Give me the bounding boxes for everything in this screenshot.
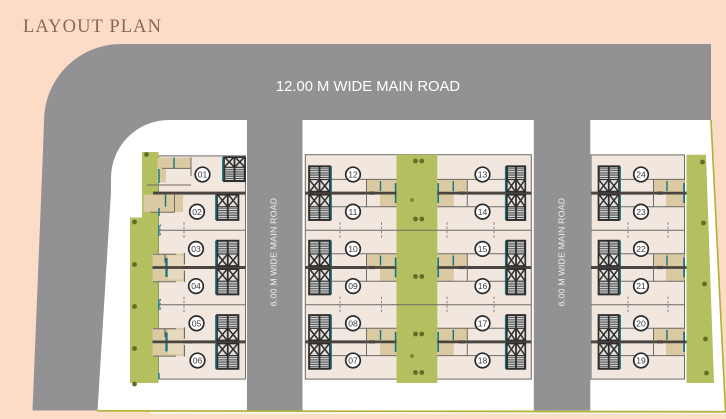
svg-text:12.00 M WIDE MAIN ROAD: 12.00 M WIDE MAIN ROAD	[276, 79, 460, 95]
svg-text:18: 18	[478, 356, 488, 366]
svg-text:09: 09	[348, 281, 358, 291]
svg-text:6.00 M WIDE MAIN ROAD: 6.00 M WIDE MAIN ROAD	[557, 198, 567, 307]
svg-text:23: 23	[636, 207, 646, 217]
svg-text:04: 04	[191, 281, 201, 291]
svg-text:12: 12	[348, 170, 358, 180]
svg-text:14: 14	[478, 207, 488, 217]
svg-text:10: 10	[348, 244, 358, 254]
svg-text:22: 22	[636, 244, 646, 254]
svg-text:01: 01	[198, 170, 208, 180]
svg-text:15: 15	[478, 244, 488, 254]
svg-text:21: 21	[636, 281, 646, 291]
svg-text:17: 17	[478, 318, 488, 328]
svg-text:19: 19	[636, 356, 646, 366]
svg-text:05: 05	[192, 318, 202, 328]
svg-text:20: 20	[636, 318, 646, 328]
svg-text:07: 07	[348, 356, 358, 366]
svg-text:06: 06	[193, 356, 203, 366]
svg-text:6.00 M WIDE MAIN ROAD: 6.00 M WIDE MAIN ROAD	[269, 198, 279, 307]
svg-text:02: 02	[192, 207, 202, 217]
svg-text:13: 13	[478, 170, 488, 180]
svg-text:24: 24	[636, 170, 646, 180]
svg-text:16: 16	[478, 281, 488, 291]
svg-text:11: 11	[349, 207, 358, 217]
svg-text:08: 08	[348, 318, 358, 328]
svg-text:03: 03	[191, 244, 201, 254]
